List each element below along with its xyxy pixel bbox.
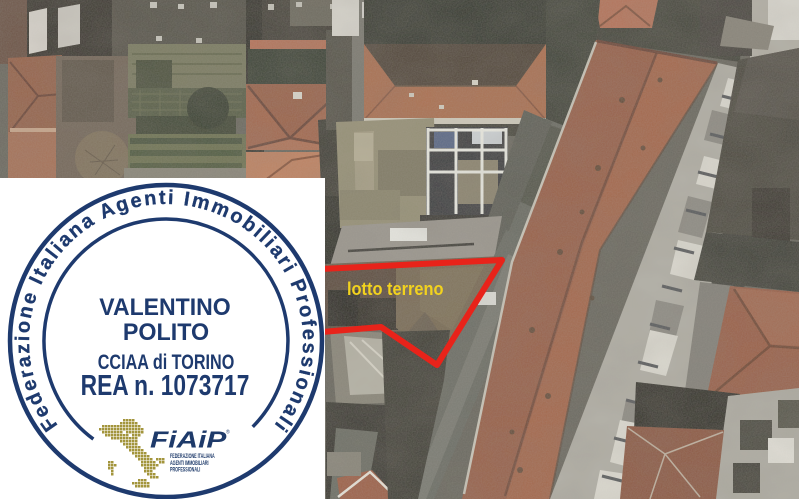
svg-text:FiAiP: FiAiP [150, 427, 227, 453]
svg-text:®: ® [226, 429, 230, 436]
svg-text:PROFESSIONALI: PROFESSIONALI [170, 467, 201, 474]
